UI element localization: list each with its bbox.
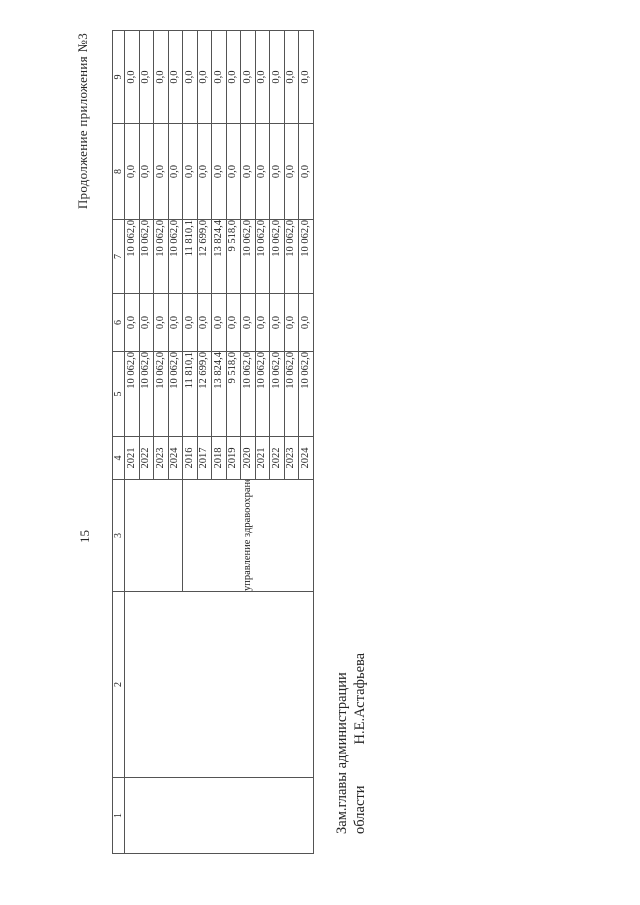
year-cell: 2017: [197, 437, 212, 480]
value-cell: 0,0: [270, 294, 285, 352]
scanned-document-page: 15 Продолжение приложения №3 1 2 3 4 5 6…: [0, 0, 640, 905]
signature-second-line: областиН.Е.Астафьева: [352, 653, 370, 834]
page-number: 15: [77, 530, 93, 543]
table-row: 2021 10 062,0 0,0 10 062,0 0,0 0,0: [125, 31, 140, 854]
value-cell: 10 062,0: [299, 220, 314, 294]
year-cell: 2023: [284, 437, 299, 480]
column-number-cell: 9: [113, 31, 125, 124]
column-number-cell: 7: [113, 220, 125, 294]
year-cell: 2019: [226, 437, 241, 480]
value-cell: 0,0: [284, 31, 299, 124]
value-cell: 11 810,1: [183, 352, 198, 437]
value-cell: 12 699,0: [197, 220, 212, 294]
year-cell: 2024: [168, 437, 183, 480]
value-cell: 0,0: [212, 31, 227, 124]
value-cell: 0,0: [255, 124, 270, 220]
value-cell: 10 062,0: [255, 352, 270, 437]
value-cell: 0,0: [197, 294, 212, 352]
appendix-continuation-note: Продолжение приложения №3: [75, 33, 91, 209]
signatory-name: Н.Е.Астафьева: [352, 653, 368, 745]
year-cell: 2020: [241, 437, 256, 480]
value-cell: 10 062,0: [125, 352, 140, 437]
signature-title-line: Зам.главы администрации: [334, 653, 352, 834]
value-cell: 0,0: [125, 124, 140, 220]
value-cell: 9 518,0: [226, 352, 241, 437]
value-cell: 0,0: [197, 124, 212, 220]
value-cell: 0,0: [270, 31, 285, 124]
value-cell: 0,0: [139, 124, 154, 220]
value-cell: 10 062,0: [241, 352, 256, 437]
signature-title-cont: области: [352, 786, 368, 834]
value-cell: 10 062,0: [284, 352, 299, 437]
value-cell: 10 062,0: [139, 352, 154, 437]
value-cell: 0,0: [226, 124, 241, 220]
value-cell: 0,0: [226, 294, 241, 352]
value-cell: 0,0: [299, 294, 314, 352]
signature-block: Зам.главы администрации областиН.Е.Астаф…: [334, 653, 369, 834]
value-cell: 0,0: [183, 294, 198, 352]
value-cell: 0,0: [284, 294, 299, 352]
column-number-cell: 8: [113, 124, 125, 220]
value-cell: 0,0: [154, 294, 169, 352]
year-cell: 2024: [299, 437, 314, 480]
year-cell: 2016: [183, 437, 198, 480]
year-cell: 2023: [154, 437, 169, 480]
column-number-cell: 6: [113, 294, 125, 352]
value-cell: 0,0: [212, 294, 227, 352]
value-cell: 10 062,0: [270, 220, 285, 294]
value-cell: 0,0: [183, 31, 198, 124]
empty-cell-col2: [125, 592, 314, 778]
value-cell: 0,0: [212, 124, 227, 220]
value-cell: 0,0: [226, 31, 241, 124]
value-cell: 0,0: [139, 31, 154, 124]
value-cell: 0,0: [168, 31, 183, 124]
value-cell: 0,0: [139, 294, 154, 352]
value-cell: 9 518,0: [226, 220, 241, 294]
appendix-table: 1 2 3 4 5 6 7 8 9 2021 10 062,0 0,0: [112, 30, 314, 854]
value-cell: 0,0: [270, 124, 285, 220]
value-cell: 11 810,1: [183, 220, 198, 294]
column-number-cell: 5: [113, 352, 125, 437]
value-cell: 0,0: [183, 124, 198, 220]
value-cell: 10 062,0: [168, 352, 183, 437]
year-cell: 2021: [255, 437, 270, 480]
value-cell: 0,0: [154, 124, 169, 220]
value-cell: 0,0: [125, 294, 140, 352]
value-cell: 13 824,4: [212, 352, 227, 437]
value-cell: 10 062,0: [270, 352, 285, 437]
column-number-cell: 2: [113, 592, 125, 778]
column-number-cell: 3: [113, 480, 125, 592]
value-cell: 13 824,4: [212, 220, 227, 294]
column-number-row: 1 2 3 4 5 6 7 8 9: [113, 31, 125, 854]
value-cell: 0,0: [299, 124, 314, 220]
value-cell: 0,0: [299, 31, 314, 124]
value-cell: 10 062,0: [255, 220, 270, 294]
signature-title: Зам.главы администрации: [334, 672, 350, 834]
value-cell: 10 062,0: [154, 352, 169, 437]
empty-cell-col1: [125, 778, 314, 854]
value-cell: 0,0: [168, 294, 183, 352]
value-cell: 0,0: [197, 31, 212, 124]
column-number-cell: 4: [113, 437, 125, 480]
value-cell: 0,0: [125, 31, 140, 124]
value-cell: 10 062,0: [299, 352, 314, 437]
value-cell: 0,0: [284, 124, 299, 220]
value-cell: 10 062,0: [154, 220, 169, 294]
column-number-cell: 1: [113, 778, 125, 854]
value-cell: 0,0: [255, 31, 270, 124]
empty-cell-col3: [125, 480, 183, 592]
value-cell: 0,0: [241, 294, 256, 352]
value-cell: 0,0: [168, 124, 183, 220]
department-label-cell: управление здравоохранения области: [183, 480, 314, 592]
value-cell: 10 062,0: [241, 220, 256, 294]
value-cell: 10 062,0: [168, 220, 183, 294]
value-cell: 10 062,0: [125, 220, 140, 294]
value-cell: 0,0: [241, 124, 256, 220]
year-cell: 2018: [212, 437, 227, 480]
rotated-landscape-page: 15 Продолжение приложения №3 1 2 3 4 5 6…: [0, 0, 640, 905]
value-cell: 12 699,0: [197, 352, 212, 437]
value-cell: 0,0: [255, 294, 270, 352]
value-cell: 0,0: [154, 31, 169, 124]
year-cell: 2021: [125, 437, 140, 480]
value-cell: 10 062,0: [139, 220, 154, 294]
value-cell: 10 062,0: [284, 220, 299, 294]
year-cell: 2022: [139, 437, 154, 480]
value-cell: 0,0: [241, 31, 256, 124]
year-cell: 2022: [270, 437, 285, 480]
